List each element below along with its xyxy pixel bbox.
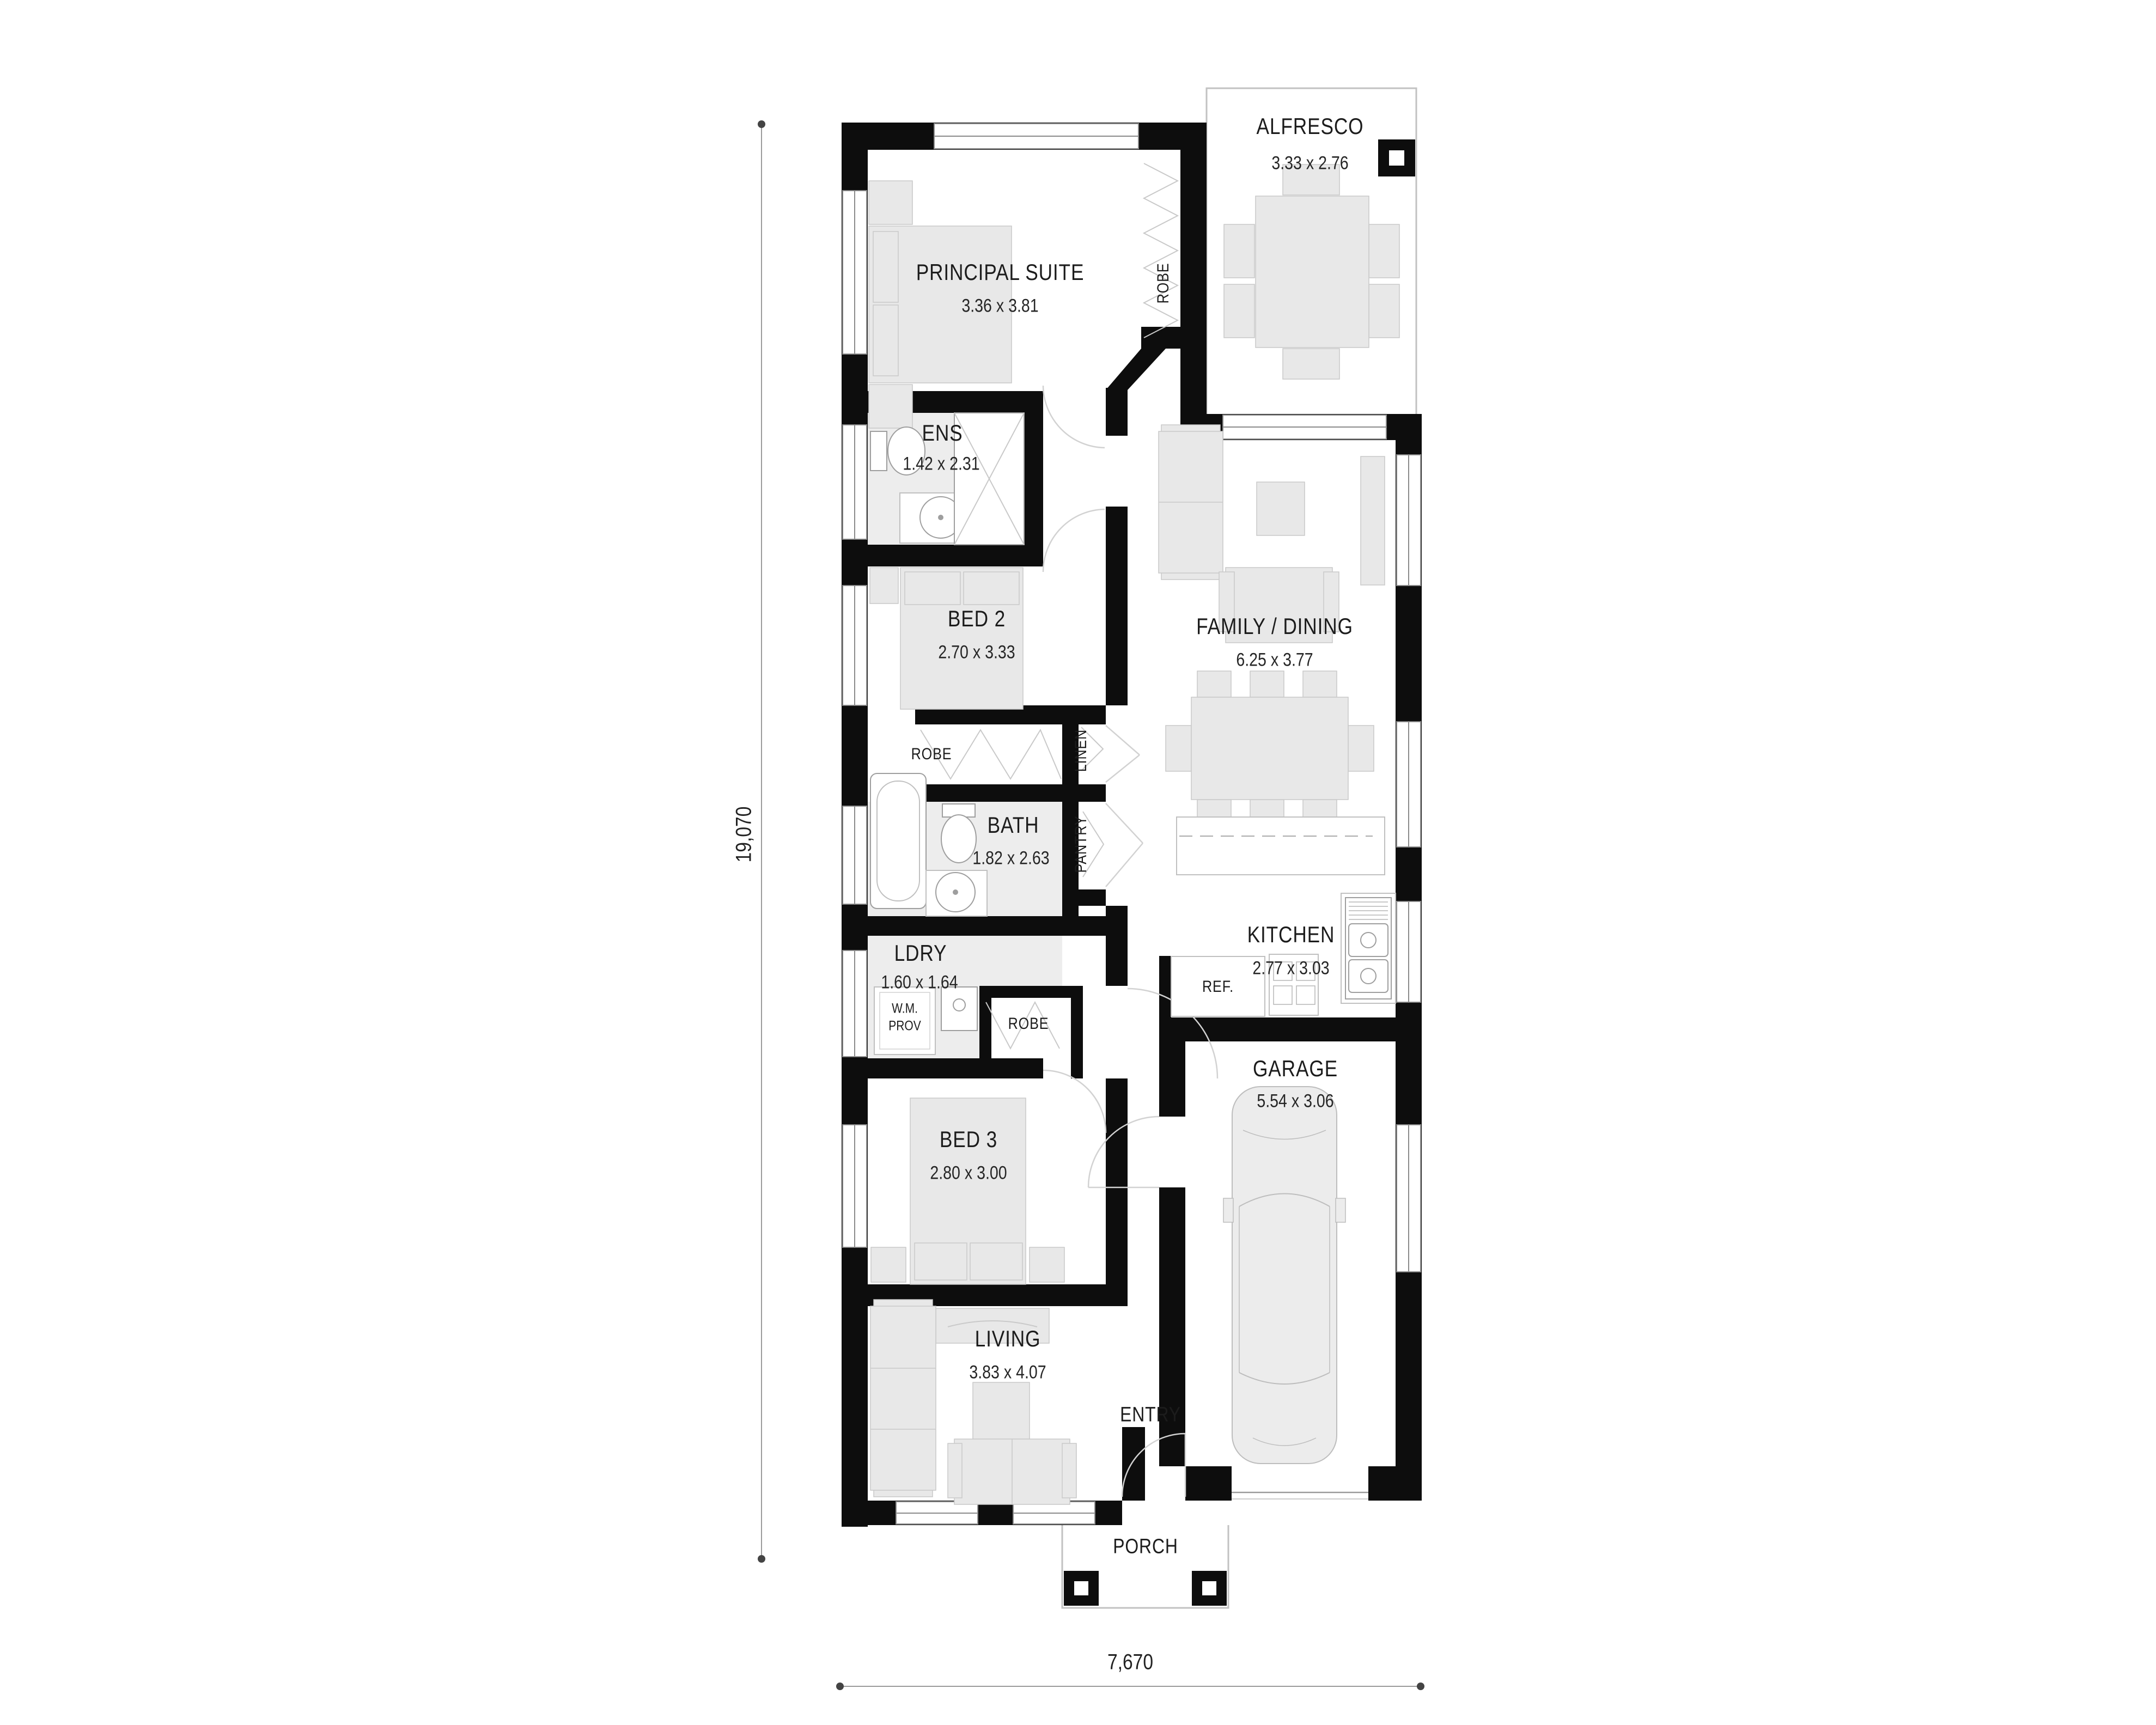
room-dims-kitchen: 2.77 x 3.03 xyxy=(1252,958,1329,979)
room-label-garage: GARAGE xyxy=(1253,1056,1338,1082)
closet-label-robe-bed3: ROBE xyxy=(1008,1015,1049,1033)
room-label-alfresco: ALFRESCO xyxy=(1257,113,1364,139)
room-label-bed3: BED 3 xyxy=(940,1126,997,1153)
room-label-porch: PORCH xyxy=(1113,1535,1178,1559)
room-dims-living: 3.83 x 4.07 xyxy=(969,1362,1046,1383)
room-label-bath: BATH xyxy=(988,812,1039,838)
room-label-ens: ENS xyxy=(922,420,963,446)
overall-depth-dimension: 19,070 xyxy=(732,807,757,863)
closet-label-pantry: PANTRY xyxy=(1072,816,1091,873)
room-label-laundry: LDRY xyxy=(894,940,947,966)
room-dims-bed3: 2.80 x 3.00 xyxy=(930,1163,1007,1184)
room-dims-garage: 5.54 x 3.06 xyxy=(1257,1091,1333,1112)
room-dims-principal-suite: 3.36 x 3.81 xyxy=(961,296,1038,317)
room-label-entry: ENTRY xyxy=(1120,1404,1181,1427)
room-label-kitchen: KITCHEN xyxy=(1247,922,1335,948)
fixture-label-wm-line1: W.M. xyxy=(892,1001,918,1017)
closet-label-robe-principal: ROBE xyxy=(1154,263,1173,304)
closet-label-robe-bed2: ROBE xyxy=(911,745,952,764)
room-dims-bed2: 2.70 x 3.33 xyxy=(938,642,1015,663)
room-dims-alfresco: 3.33 x 2.76 xyxy=(1271,153,1348,174)
car-top-view xyxy=(1223,1087,1345,1464)
overall-width-dimension: 7,670 xyxy=(1107,1650,1153,1675)
room-dims-ens: 1.42 x 2.31 xyxy=(903,454,979,475)
room-dims-bath: 1.82 x 2.63 xyxy=(972,848,1049,869)
room-label-bed2: BED 2 xyxy=(948,606,1006,632)
room-label-principal-suite: PRINCIPAL SUITE xyxy=(916,259,1085,285)
room-label-living: LIVING xyxy=(975,1326,1041,1352)
floor-plan-canvas: ALFRESCO 3.33 x 2.76 PRINCIPAL SUITE 3.3… xyxy=(0,0,2156,1725)
room-dims-family-dining: 6.25 x 3.77 xyxy=(1236,650,1313,671)
room-label-family-dining: FAMILY / DINING xyxy=(1196,613,1353,639)
room-dims-laundry: 1.60 x 1.64 xyxy=(881,972,958,993)
closet-label-linen: LINEN xyxy=(1072,729,1091,772)
fixture-label-fridge: REF. xyxy=(1202,978,1234,996)
fixture-label-wm-line2: PROV xyxy=(888,1019,921,1034)
